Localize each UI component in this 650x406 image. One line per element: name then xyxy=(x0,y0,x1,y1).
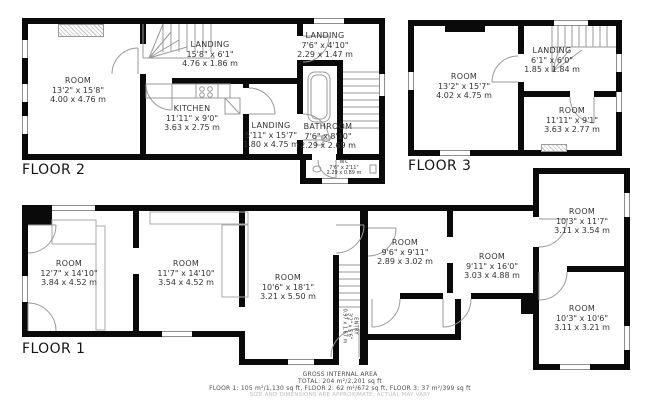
window xyxy=(22,84,28,102)
area-summary: GROSS INTERNAL AREA TOTAL: 204 m²/2,201 … xyxy=(190,371,490,399)
room-name: LANDING xyxy=(533,46,572,56)
door-opening xyxy=(146,78,172,84)
room-dim-imperial: 11'7" x 14'10" xyxy=(157,268,214,278)
room-label-floor1-bottom-right: ROOM 10'3" x 10'6" 3.11 x 3.21 m xyxy=(554,304,610,333)
room-dim-metric: 1.80 x 4.75 m xyxy=(243,140,299,150)
room-dim-metric: 2.29 x 1.47 m xyxy=(297,50,353,60)
window xyxy=(624,326,630,350)
room-dim-imperial: 11'11" x 9'0" xyxy=(166,113,218,123)
disclaimer: SIZE AND DIMENSIONS ARE APPROXIMATE, ACT… xyxy=(190,392,490,399)
room-dim-metric: 0.97 x 1.67 m xyxy=(341,309,347,344)
window xyxy=(22,276,28,302)
window xyxy=(52,205,95,211)
wall xyxy=(245,359,288,365)
wall xyxy=(140,18,146,160)
room-label-floor2-landing-mid: LANDING 5'11" x 15'7" 1.80 x 4.75 m xyxy=(243,121,299,150)
room-name: ROOM xyxy=(173,259,199,269)
room-dim-imperial: 10'3" x 10'6" xyxy=(556,313,608,323)
wall xyxy=(333,255,339,359)
room-dim-imperial: 15'8" x 6'1" xyxy=(186,49,233,59)
per-floor-areas: FLOOR 1: 105 m²/1,130 sq ft, FLOOR 2: 62… xyxy=(190,385,490,392)
wall xyxy=(455,299,461,340)
door-opening xyxy=(533,217,539,247)
room-label-floor2-kitchen: KITCHEN 11'11" x 9'0" 3.63 x 2.75 m xyxy=(164,104,220,133)
window xyxy=(288,359,314,365)
window xyxy=(22,116,28,134)
room-dim-metric: 3.54 x 4.52 m xyxy=(158,278,214,288)
room-name: BATHROOM xyxy=(304,122,353,132)
gross-internal-area-title: GROSS INTERNAL AREA xyxy=(190,371,490,378)
room-label-floor1-entry: ENTRY 3'2" x 5'6" 0.97 x 1.67 m xyxy=(341,309,358,344)
room-name: LANDING xyxy=(306,31,345,41)
wall xyxy=(408,20,622,26)
room-label-floor1-top-right: ROOM 10'3" x 11'7" 3.11 x 3.54 m xyxy=(554,207,610,236)
room-dim-metric: 2.29 x 2.69 m xyxy=(300,141,356,151)
room-dim-metric: 4.02 x 4.75 m xyxy=(436,91,492,101)
room-name: LANDING xyxy=(252,121,291,131)
room-label-floor1-center: ROOM 10'6" x 18'1" 3.21 x 5.50 m xyxy=(260,273,316,302)
room-label-floor3-landing: LANDING 6'1" x 6'0" 1.85 x 1.84 m xyxy=(524,46,580,75)
room-name: ENTRY xyxy=(352,317,358,335)
skylight-hatch xyxy=(58,24,104,37)
chimney-breast xyxy=(445,20,485,32)
room-name: LANDING xyxy=(191,40,230,50)
room-dim-metric: 3.11 x 3.54 m xyxy=(554,226,610,236)
wall xyxy=(359,359,368,365)
wall xyxy=(447,211,453,237)
room-dim-imperial: 12'7" x 14'10" xyxy=(40,268,97,278)
door-opening xyxy=(133,248,139,274)
floor3-plan: ROOM 13'2" x 15'7" 4.02 x 4.75 m LANDING… xyxy=(408,20,622,170)
wall xyxy=(400,293,443,299)
window xyxy=(440,150,470,156)
room-label-floor2-landing-top: LANDING 15'8" x 6'1" 4.76 x 1.86 m xyxy=(182,40,238,69)
room-dim-metric: 2.89 x 3.02 m xyxy=(377,257,433,267)
room-name: ROOM xyxy=(392,238,418,248)
wall xyxy=(360,211,368,359)
window xyxy=(616,92,622,112)
room-label-floor3-small: ROOM 11'11" x 9'1" 3.63 x 2.77 m xyxy=(544,106,600,135)
window xyxy=(616,54,622,72)
room-dim-metric: 3.63 x 2.75 m xyxy=(164,123,220,133)
wall xyxy=(239,205,245,365)
room-dim-metric: 4.00 x 4.76 m xyxy=(50,95,106,105)
room-dim-imperial: 10'3" x 11'7" xyxy=(556,216,608,226)
door-opening xyxy=(539,266,567,272)
room-dim-imperial: 9'11" x 16'0" xyxy=(466,261,518,271)
room-name: ROOM xyxy=(569,304,595,314)
window xyxy=(162,331,192,337)
wall xyxy=(518,91,570,97)
wall xyxy=(447,263,453,293)
room-label-floor1-right-mid: ROOM 9'11" x 16'0" 3.03 x 4.88 m xyxy=(464,252,520,281)
room-dim-metric: 4.76 x 1.86 m xyxy=(182,59,238,69)
room-dim-imperial: 13'2" x 15'8" xyxy=(52,85,104,95)
room-dim-imperial: 6'1" x 6'0" xyxy=(531,55,573,65)
window xyxy=(22,40,28,58)
room-name: ROOM xyxy=(65,76,91,86)
room-label-floor1-mid: ROOM 11'7" x 14'10" 3.54 x 4.52 m xyxy=(157,259,214,288)
room-label-floor3-main: ROOM 13'2" x 15'7" 4.02 x 4.75 m xyxy=(436,72,492,101)
total-area: TOTAL: 204 m²/2,201 sq ft xyxy=(190,378,490,385)
window xyxy=(554,20,588,26)
room-dim-imperial: 10'6" x 18'1" xyxy=(262,282,314,292)
wall xyxy=(22,205,533,211)
wall xyxy=(521,298,533,314)
room-name: KITCHEN xyxy=(174,104,211,114)
room-label-floor1-left: ROOM 12'7" x 14'10" 3.84 x 4.52 m xyxy=(40,259,97,288)
wall xyxy=(533,168,630,174)
wall xyxy=(314,359,339,365)
room-dim-imperial: 13'2" x 15'7" xyxy=(438,81,490,91)
room-label-floor2-main: ROOM 13'2" x 15'8" 4.00 x 4.76 m xyxy=(50,76,106,105)
room-dim-imperial: 9'6" x 9'11" xyxy=(381,247,428,257)
room-name: ROOM xyxy=(559,106,585,116)
room-dim-metric: 3.21 x 5.50 m xyxy=(260,292,316,302)
room-dim-imperial: 7'6" x 8'10" xyxy=(304,131,351,141)
room-name: ROOM xyxy=(56,259,82,269)
door-opening xyxy=(243,88,249,114)
room-name: ROOM xyxy=(451,72,477,82)
floor1-label: FLOOR 1 xyxy=(22,341,85,357)
room-label-floor2-bathroom: BATHROOM 7'6" x 8'10" 2.29 x 2.69 m xyxy=(300,122,356,151)
wall xyxy=(518,20,524,156)
chimney-breast xyxy=(28,211,52,225)
room-dim-metric: 1.85 x 1.84 m xyxy=(524,65,580,75)
window xyxy=(624,193,630,217)
room-label-floor2-landing-small: LANDING 7'6" x 4'10" 2.29 x 1.47 m xyxy=(297,31,353,60)
window xyxy=(379,74,385,96)
room-dim-imperial: 5'11" x 15'7" xyxy=(245,130,297,140)
floorplan-page: ROOM 13'2" x 15'8" 4.00 x 4.76 m LANDING… xyxy=(0,0,650,406)
stairs xyxy=(339,265,360,307)
wall xyxy=(368,334,461,340)
room-dim-metric: 3.03 x 4.88 m xyxy=(464,271,520,281)
room-dim-metric: 3.63 x 2.77 m xyxy=(544,125,600,135)
room-name: ROOM xyxy=(569,207,595,217)
door-opening xyxy=(518,54,524,82)
door-opening xyxy=(140,44,146,74)
door-opening xyxy=(239,307,245,331)
window xyxy=(560,364,590,370)
window xyxy=(314,18,344,24)
window xyxy=(408,72,414,90)
floor1-plan: ROOM 12'7" x 14'10" 3.84 x 4.52 m ROOM 1… xyxy=(22,168,630,380)
room-dim-metric: 3.84 x 4.52 m xyxy=(41,278,97,288)
room-name: ROOM xyxy=(275,273,301,283)
room-dim-metric: 3.11 x 3.21 m xyxy=(554,323,610,333)
room-name: ROOM xyxy=(479,252,505,262)
room-dim-imperial: 11'11" x 9'1" xyxy=(546,115,598,125)
room-label-floor1-small: ROOM 9'6" x 9'11" 2.89 x 3.02 m xyxy=(377,238,433,267)
room-dim-imperial: 7'6" x 4'10" xyxy=(301,40,348,50)
wall xyxy=(616,20,622,156)
vent-hatch xyxy=(541,144,567,152)
